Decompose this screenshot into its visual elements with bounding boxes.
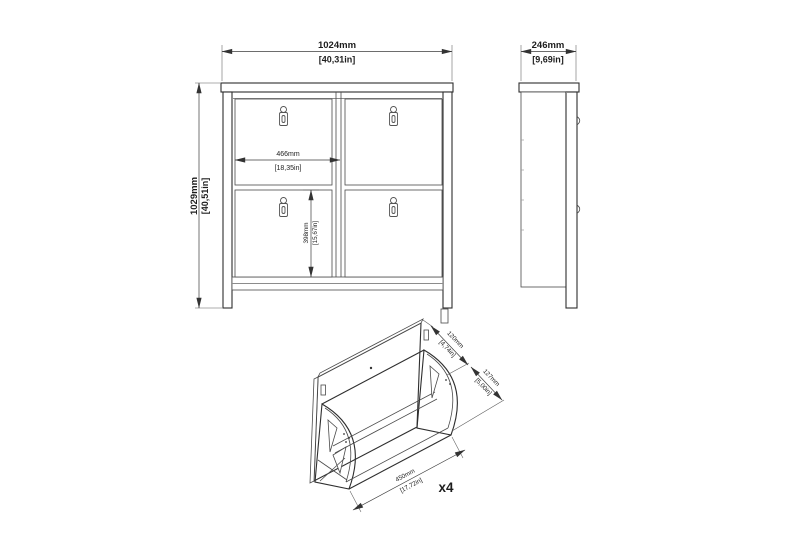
front-height-mm-label: 1029mm xyxy=(189,177,200,215)
side-view: 246mm [9,69in] xyxy=(519,40,580,308)
door-height-in-label: [15,67in] xyxy=(312,221,319,245)
flip-doors xyxy=(235,99,442,277)
door-height-mm-label: 398mm xyxy=(303,223,310,244)
front-width-mm-label: 1024mm xyxy=(318,40,356,51)
side-body xyxy=(521,92,566,287)
door-top-left xyxy=(235,99,332,185)
compartment-width-mm-label: 466mm xyxy=(276,151,300,158)
hinge-tab-right xyxy=(424,330,429,340)
front-width-dimension: 1024mm [40,31in] xyxy=(222,40,452,81)
door-top-right xyxy=(345,99,442,185)
technical-drawing-page: 1024mm [40,31in] 1029mm [40,51in] 466mm … xyxy=(0,0,800,533)
shoe-cabinet-dimension-drawing: 1024mm [40,31in] 1029mm [40,51in] 466mm … xyxy=(0,0,800,533)
side-top-panel xyxy=(519,83,579,92)
cabinet-top-panel xyxy=(221,83,453,92)
cabinet-left-leg xyxy=(223,92,232,308)
side-front-leg xyxy=(566,92,577,308)
hinge-pin xyxy=(441,309,448,323)
bin-right-cheek-rim xyxy=(427,354,453,428)
compartment-width-in-label: [18,35in] xyxy=(275,165,302,172)
cabinet-side-outline xyxy=(519,83,580,308)
quantity-label: x4 xyxy=(438,480,454,495)
detail-opening-dimension: 127mm [5,00in] xyxy=(452,367,504,431)
side-depth-in-label: [9,69in] xyxy=(532,55,564,65)
front-height-in-label: [40,51in] xyxy=(200,178,210,215)
side-depth-dimension: 246mm [9,69in] xyxy=(521,40,576,81)
side-depth-mm-label: 246mm xyxy=(532,40,565,51)
cabinet-right-leg xyxy=(443,92,452,308)
cutout-triangle xyxy=(430,366,439,398)
front-width-in-label: [40,31in] xyxy=(319,55,356,65)
back-panel-face xyxy=(314,323,421,481)
screw-hole xyxy=(370,367,372,369)
bin-right-cheek xyxy=(417,350,457,435)
detail-view: 120mm [4,74in] 127mm [5,00in] 450mm [17,… xyxy=(310,309,504,512)
front-view: 1024mm [40,31in] 1029mm [40,51in] 466mm … xyxy=(189,40,453,308)
front-height-dimension: 1029mm [40,51in] xyxy=(189,83,222,308)
